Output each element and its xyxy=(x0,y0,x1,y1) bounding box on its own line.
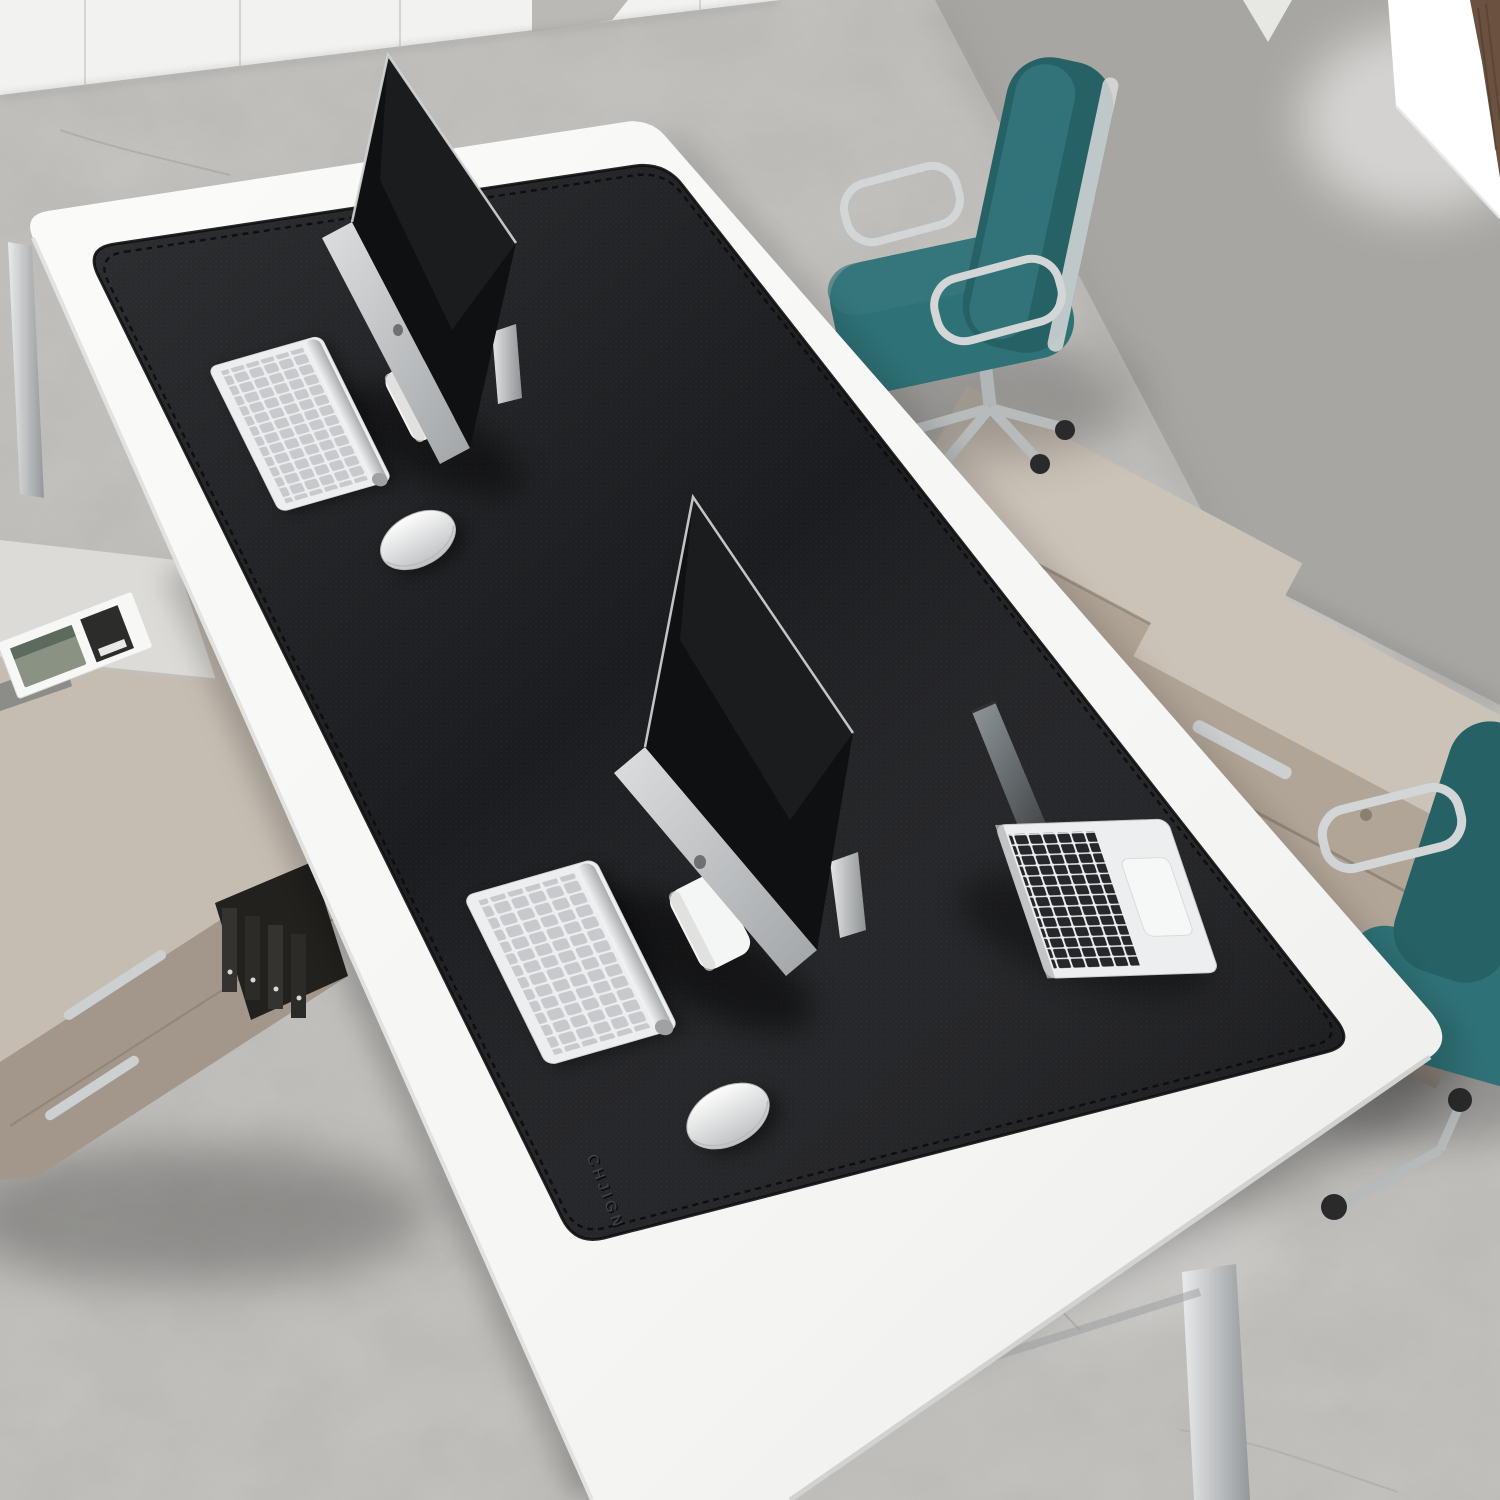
apple-logo-icon xyxy=(393,324,403,336)
apple-logo-icon xyxy=(694,855,706,869)
office-scene-photo: CHJIGN CHJIGN xyxy=(0,0,1500,1500)
